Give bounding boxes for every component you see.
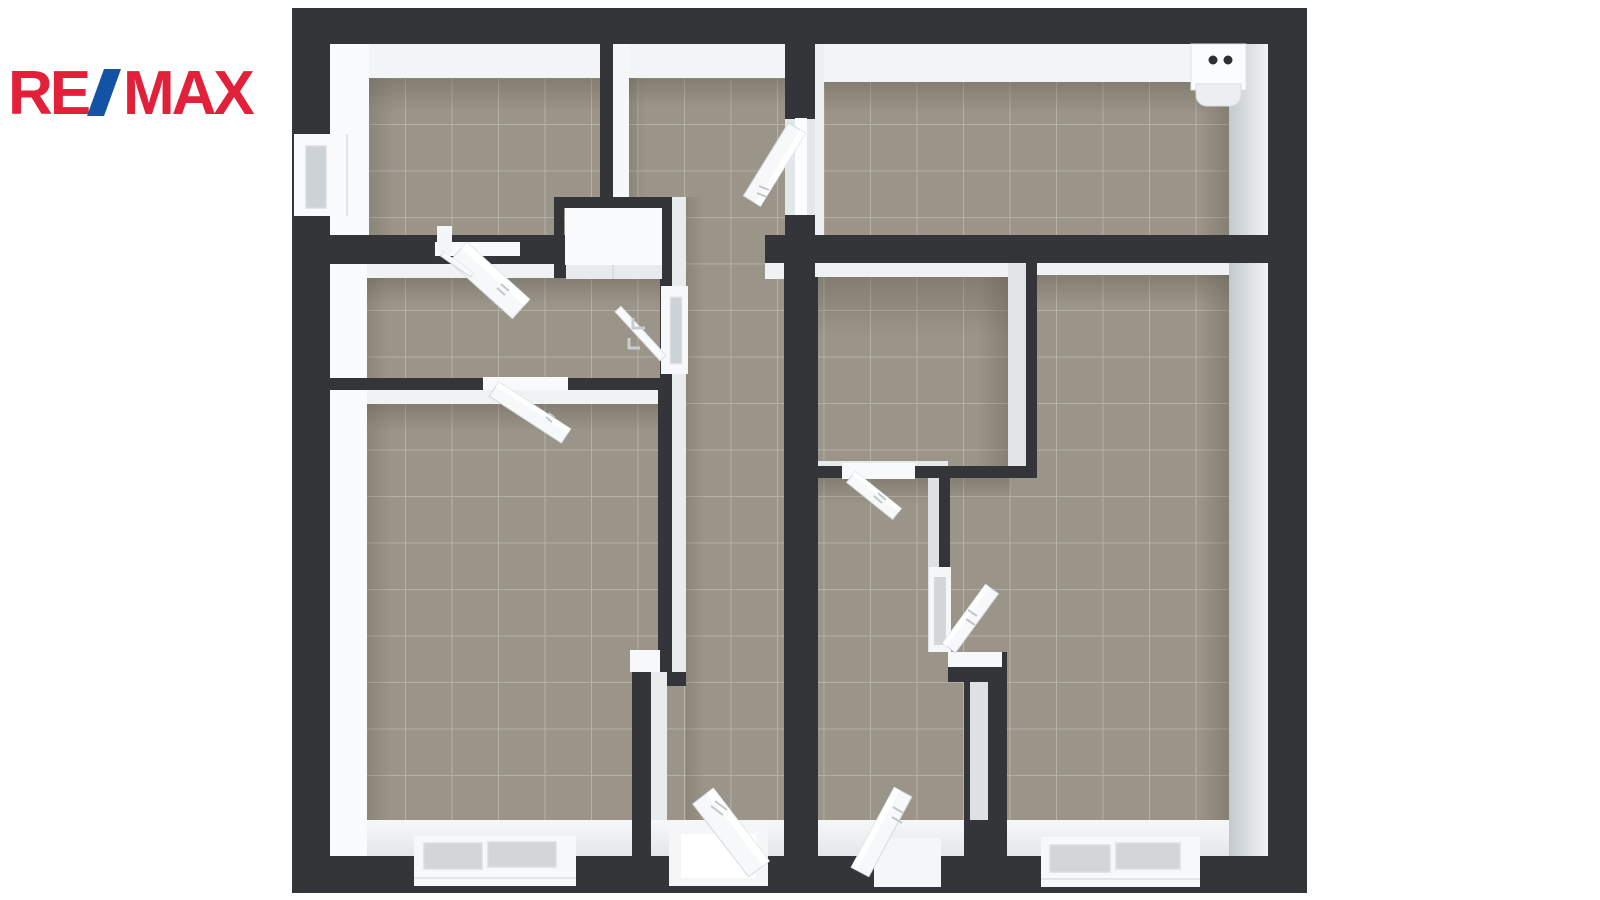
svg-text:RE: RE	[8, 59, 89, 128]
svg-text:MAX: MAX	[123, 59, 254, 128]
